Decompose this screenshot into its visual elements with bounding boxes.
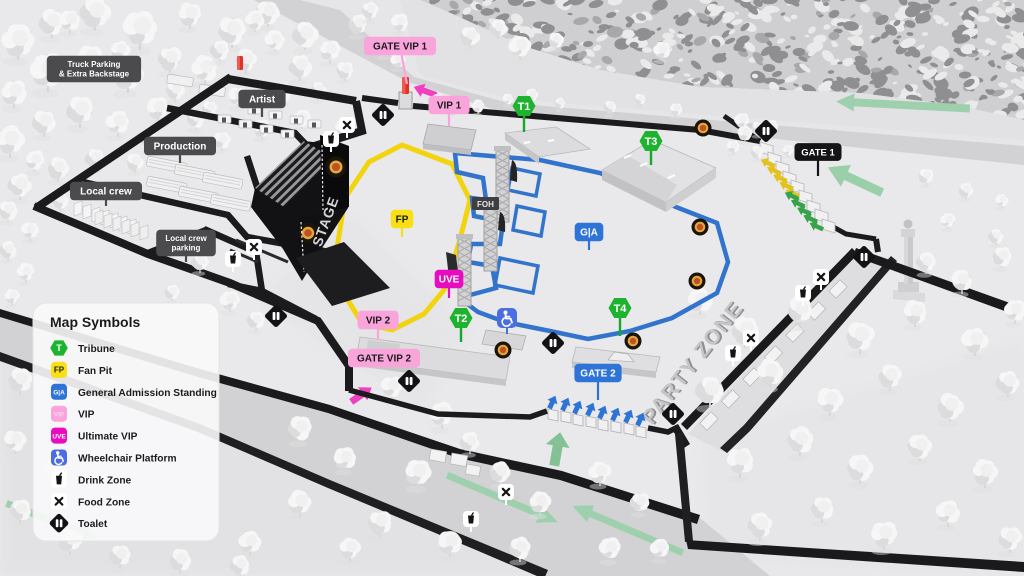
svg-text:GATE 2: GATE 2 [580, 369, 616, 380]
svg-text:Local crew: Local crew [165, 234, 207, 243]
svg-text:Production: Production [154, 142, 207, 153]
svg-text:VIP: VIP [78, 410, 95, 421]
svg-text:T3: T3 [645, 136, 658, 148]
svg-text:UVE: UVE [439, 275, 460, 286]
svg-text:Toalet: Toalet [78, 519, 108, 530]
svg-text:Artist: Artist [249, 95, 276, 106]
svg-text:GATE VIP 2: GATE VIP 2 [357, 354, 412, 365]
svg-text:VIP 1: VIP 1 [437, 101, 462, 112]
svg-text:GATE VIP 1: GATE VIP 1 [373, 42, 428, 53]
svg-text:Ultimate VIP: Ultimate VIP [78, 432, 138, 443]
svg-text:parking: parking [172, 244, 201, 253]
svg-text:GATE 1: GATE 1 [801, 147, 835, 158]
svg-text:Truck Parking: Truck Parking [68, 60, 121, 69]
svg-text:FP: FP [54, 366, 65, 375]
svg-text:G|A: G|A [580, 228, 598, 239]
svg-text:UVE: UVE [52, 433, 66, 440]
svg-text:T2: T2 [455, 313, 468, 325]
svg-text:Drink Zone: Drink Zone [78, 475, 132, 486]
svg-text:Local crew: Local crew [80, 187, 132, 198]
svg-text:Tribune: Tribune [78, 344, 115, 355]
svg-text:FOH: FOH [477, 200, 494, 209]
svg-text:Fan Pit: Fan Pit [78, 366, 113, 377]
svg-text:& Extra Backstage: & Extra Backstage [59, 70, 130, 79]
svg-text:VIP: VIP [54, 412, 65, 419]
svg-text:T1: T1 [518, 101, 531, 113]
svg-text:Wheelchair Platform: Wheelchair Platform [78, 454, 177, 465]
svg-text:FP: FP [396, 215, 409, 226]
svg-text:Map Symbols: Map Symbols [50, 314, 140, 330]
svg-text:T4: T4 [614, 303, 628, 315]
svg-text:G|A: G|A [53, 390, 65, 397]
svg-text:VIP 2: VIP 2 [366, 316, 391, 327]
svg-text:T: T [56, 343, 62, 353]
svg-text:Food Zone: Food Zone [78, 497, 130, 508]
svg-text:General Admission Standing: General Admission Standing [78, 388, 217, 399]
